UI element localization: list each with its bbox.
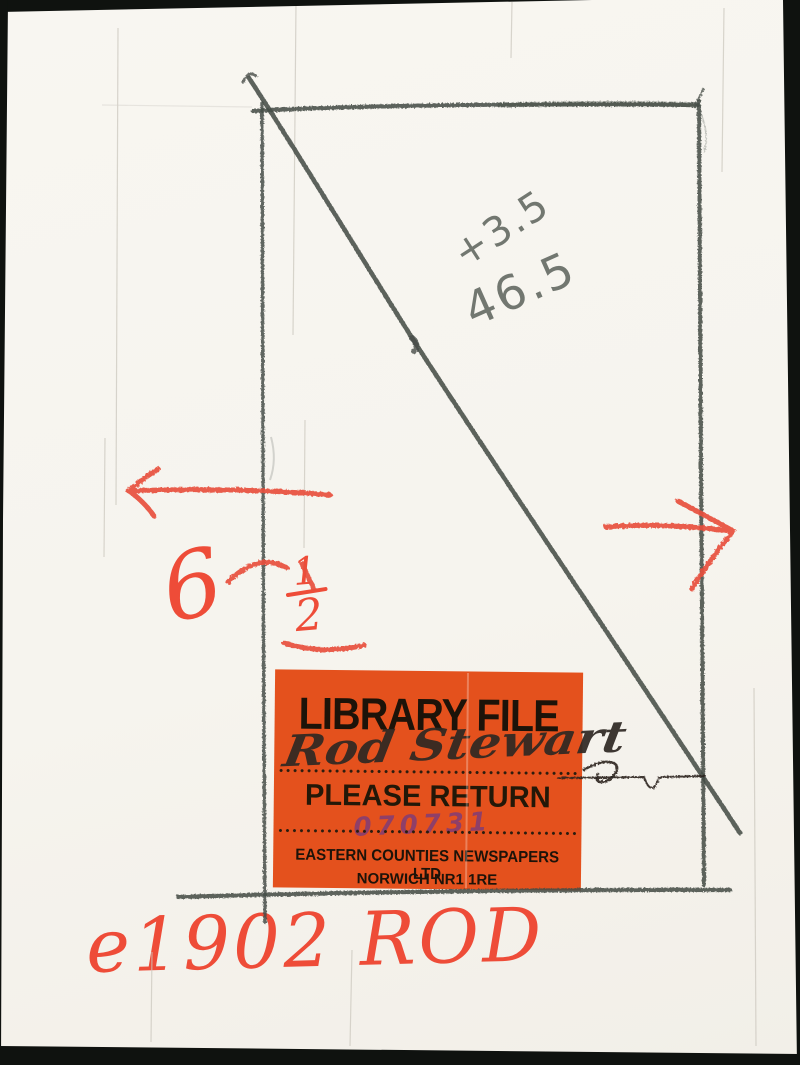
red-reference-code: e1902 ROD: [85, 892, 545, 990]
photo-back-scan: LIBRARY FILE PLEASE RETURN 070731 EASTER…: [0, 0, 800, 1065]
handwritten-file-number: 070731: [353, 807, 493, 843]
red-size-fraction: 1 2: [281, 552, 334, 637]
please-return-label: PLEASE RETURN: [278, 780, 577, 813]
company-address: NORWICH NR1 1RE: [273, 869, 581, 889]
red-size-numerator: 1: [281, 552, 330, 590]
library-file-sticker: LIBRARY FILE PLEASE RETURN 070731 EASTER…: [273, 669, 583, 890]
red-size-denominator: 2: [284, 594, 333, 637]
